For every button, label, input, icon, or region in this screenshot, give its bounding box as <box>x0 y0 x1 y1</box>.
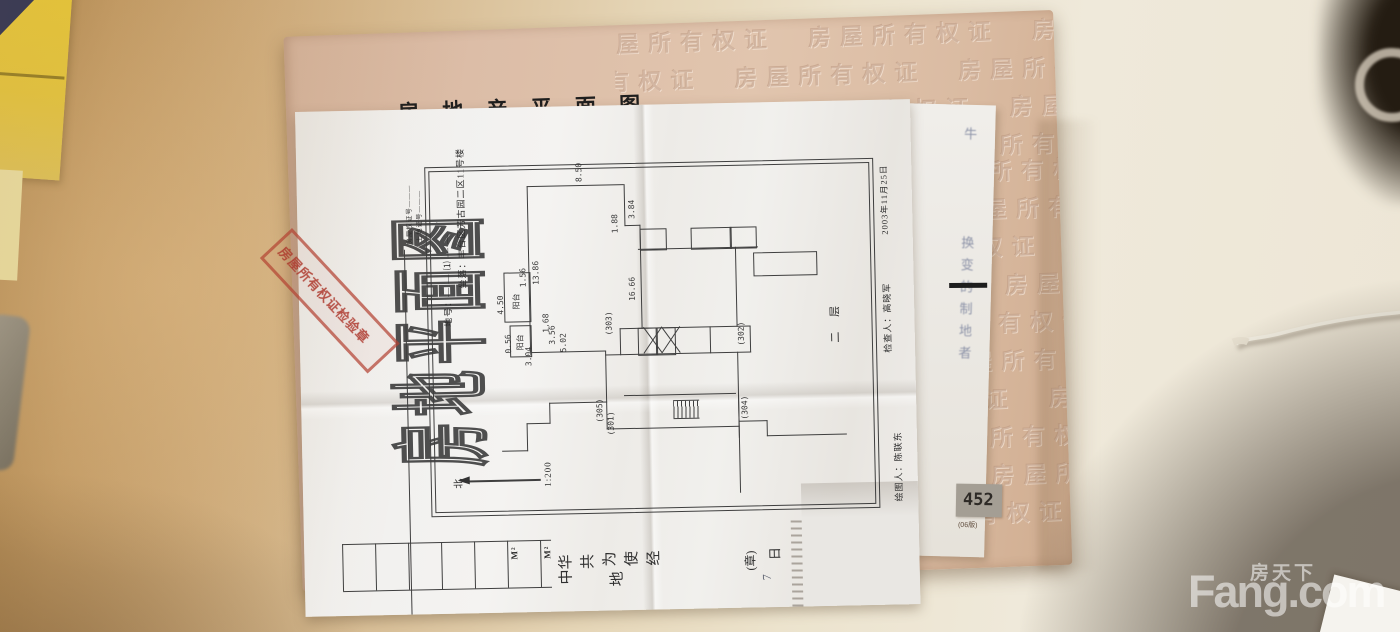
table-top-line <box>342 540 551 546</box>
photo-scene: 房屋所有权证 房屋所有权证 房屋所有权证 房屋所有权证 房屋所有权证 房屋所有权… <box>0 0 1400 632</box>
navy-corner <box>0 0 45 51</box>
table-column-line <box>474 541 476 588</box>
handwritten-digit: 7 <box>760 574 775 580</box>
floor-label: 二 层 <box>826 300 843 343</box>
dim-label: 0.56 <box>504 334 513 353</box>
plan-sheet: 房地平面图 房屋权证号——— 土地证号——— 地号：— — ⑴ — — 坐落：丰… <box>295 99 920 617</box>
scale-label: 1:200 <box>542 461 553 487</box>
dim-label: 16.66 <box>628 277 638 301</box>
boilerplate-text: 地 <box>606 571 627 586</box>
folder-seam <box>0 71 65 79</box>
lot-no-line: 地号：— — ⑴ — — <box>440 234 455 327</box>
serial-patch: 452 <box>956 484 1003 518</box>
stairs-hatch <box>673 400 699 420</box>
handwriting-top: 牛 <box>962 127 978 149</box>
plan-line <box>767 420 769 436</box>
dim-label: 13.86 <box>531 261 541 285</box>
table-bottom-line <box>343 587 552 593</box>
serrated-edge <box>791 515 804 606</box>
table-column-line <box>375 543 377 590</box>
balcony-label: 阳台 <box>511 293 522 309</box>
room-label: (304) <box>740 395 750 419</box>
plan-box <box>640 228 667 251</box>
table-column-line <box>441 542 443 589</box>
land-no-line: 土地证号——— <box>413 190 424 243</box>
day-label: 日 <box>764 547 783 560</box>
room-label: (301) <box>606 411 616 435</box>
boilerplate-text: 共 <box>576 554 597 569</box>
dim-label: 1.88 <box>610 214 619 233</box>
date-text: 2003年11月25日 <box>877 164 890 234</box>
plan-box <box>730 226 757 249</box>
string-shadow <box>1238 316 1400 348</box>
boilerplate-text: 为 <box>598 551 619 566</box>
drafter-text: 绘图人：陈联东 <box>891 431 905 501</box>
table-column-line <box>342 544 344 591</box>
room-label: (303) <box>604 311 614 335</box>
room-label: (305) <box>595 398 605 422</box>
serial-number: 452 <box>963 490 994 511</box>
elevator-x <box>656 327 677 355</box>
unit-label: M² <box>509 546 519 559</box>
dim-label: 3.84 <box>627 200 636 219</box>
handwriting: 牛 换变的制地者 <box>954 127 979 368</box>
booklet-edge-shadow <box>1038 120 1098 570</box>
room-label: (302) <box>736 322 746 346</box>
dim-label: 8.50 <box>574 163 583 182</box>
boilerplate-text: 经 <box>642 550 663 565</box>
boilerplate-text: 使 <box>620 551 641 566</box>
seal-placeholder: (章) <box>741 550 758 570</box>
plan-box <box>691 227 732 250</box>
string-knot <box>1233 341 1248 343</box>
checker-text: 检查人：高晓军 <box>880 283 894 353</box>
dim-label: 4.50 <box>496 295 505 314</box>
plan-box <box>753 251 817 276</box>
boilerplate-text: 中华 <box>554 554 576 584</box>
handwriting-body: 换变的制地者 <box>956 235 974 367</box>
dim-label: 1.56 <box>518 268 527 287</box>
dim-label: 3.04 <box>524 347 533 366</box>
dim-label: 5.02 <box>559 333 568 352</box>
string <box>1230 290 1400 360</box>
dim-label: 3.56 <box>548 325 557 344</box>
unit-label: M² <box>542 546 552 559</box>
dark-bar <box>949 283 987 288</box>
edition-note: (06版) <box>958 520 978 530</box>
north-arrowhead-icon <box>458 476 470 484</box>
